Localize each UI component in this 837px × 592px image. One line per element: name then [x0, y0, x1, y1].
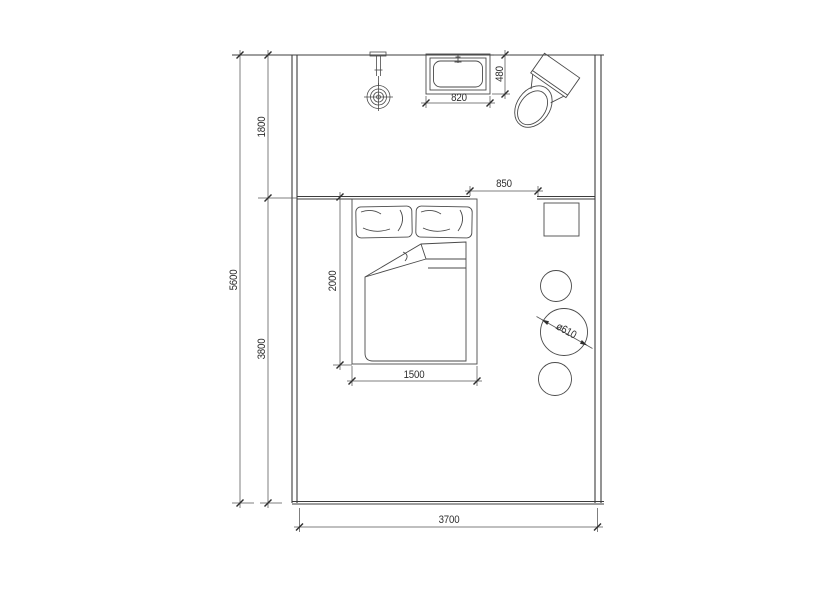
dim-label-vanity-width: 820 [451, 92, 467, 104]
dim-label-door-opening: 850 [496, 178, 512, 190]
dim-label-bath-zone-depth: 1800 [256, 117, 268, 138]
room-walls [232, 55, 604, 504]
dim-label-room-total-depth: 5600 [228, 270, 240, 291]
nightstand [544, 203, 579, 236]
double-bed [352, 199, 477, 364]
stool-top [541, 271, 572, 302]
bed-frame [352, 199, 477, 364]
dim-label-vanity-depth: 480 [494, 66, 506, 82]
dim-label-bedroom-zone-depth: 3800 [256, 339, 268, 360]
floor-plan-canvas: 5600 1800 3800 820 480 850 2000 1500 370… [0, 0, 837, 592]
vanity-sink [426, 54, 490, 94]
dimension-ticks [237, 52, 602, 531]
dimension-lines [232, 50, 603, 532]
stool-bottom [539, 363, 572, 396]
floor-plan-drawing [0, 0, 837, 592]
dim-label-bed-length: 2000 [327, 271, 339, 292]
pillow-left [356, 206, 413, 238]
toilet [503, 53, 580, 137]
dim-label-room-width: 3700 [439, 514, 460, 526]
wall-light-fixture [364, 52, 393, 111]
pillow-right [416, 206, 473, 238]
dim-label-bed-width: 1500 [404, 369, 425, 381]
duvet [365, 242, 466, 361]
